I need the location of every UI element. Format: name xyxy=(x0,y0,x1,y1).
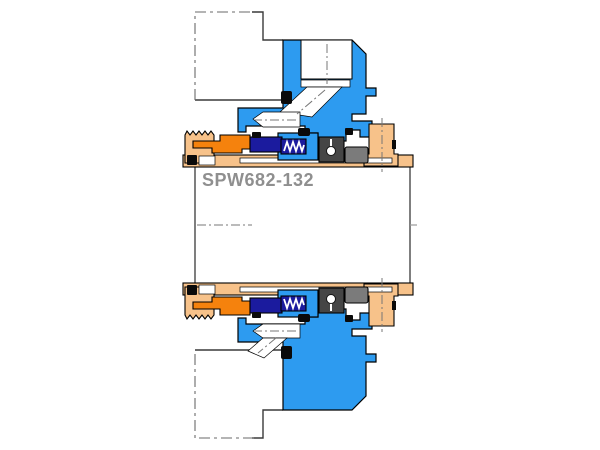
flush-port-seat-upper xyxy=(301,80,350,87)
diagram-canvas: SPW682-132 xyxy=(0,0,600,450)
clamp-block-lower xyxy=(345,287,368,303)
mechanical-seal-diagram: SPW682-132 xyxy=(0,0,600,450)
set-screw-head-lower xyxy=(327,295,336,304)
step-o-ring-lower xyxy=(345,315,353,322)
collar-pin-lower xyxy=(392,301,396,310)
sleeve-slot-upper xyxy=(199,156,215,165)
step-o-ring-upper xyxy=(345,128,353,135)
gland-gasket-o-ring-upper xyxy=(281,91,292,104)
housing-lower-body xyxy=(195,350,283,438)
nose-o-ring-lower xyxy=(298,314,310,322)
seal-face-mating-upper xyxy=(250,137,282,152)
sleeve-slot-lower xyxy=(199,285,215,294)
housing-upper-body xyxy=(195,12,283,100)
set-screw-head-upper xyxy=(327,147,336,156)
clamp-block-upper xyxy=(345,147,368,163)
face-o-ring-lower xyxy=(252,312,261,318)
sleeve-o-ring-upper xyxy=(187,155,197,165)
collar-pin-upper xyxy=(392,140,396,149)
seal-face-mating-lower xyxy=(250,298,282,313)
nose-o-ring-upper xyxy=(298,128,310,136)
gland-gasket-o-ring-lower xyxy=(281,346,292,359)
equipment-housing-upper xyxy=(195,12,283,100)
face-o-ring-upper xyxy=(252,132,261,138)
equipment-housing-lower xyxy=(195,350,283,438)
shaft-label: SPW682-132 xyxy=(202,170,314,190)
sleeve-o-ring-lower xyxy=(187,285,197,295)
